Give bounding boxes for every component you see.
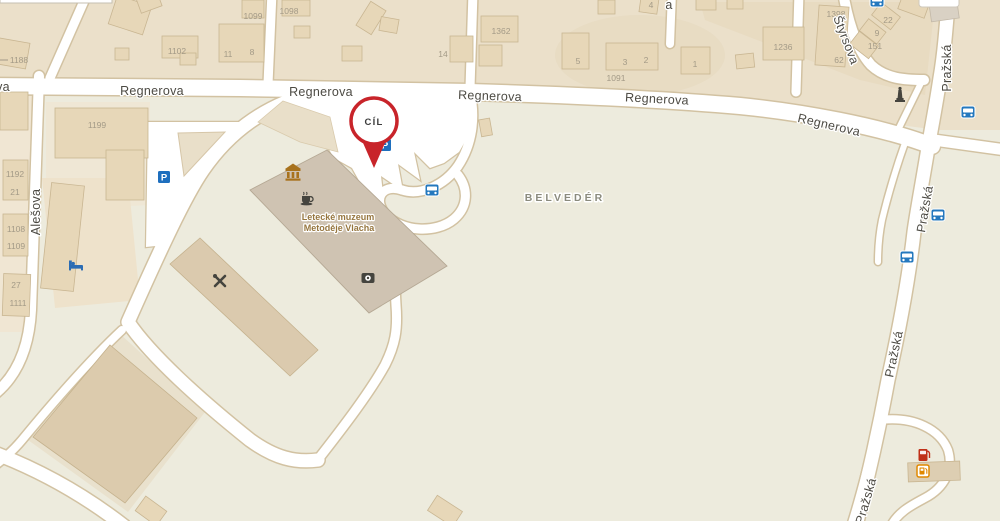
museum-label-line1: Letecké muzeum [302, 212, 375, 222]
house-number: 5 [576, 56, 581, 66]
house-number: 1109 [7, 241, 26, 251]
house-number: 1098 [280, 6, 299, 16]
house-number: 151 [868, 41, 882, 51]
building [294, 26, 310, 38]
house-number: 1111 [9, 298, 26, 308]
map-canvas: 1188 1102 11 8 1099 1098 14 1362 5 3 2 1… [0, 0, 1000, 521]
house-number: 1199 [88, 120, 107, 130]
map-viewport[interactable]: 1188 1102 11 8 1099 1098 14 1362 5 3 2 1… [0, 0, 1000, 521]
building [342, 46, 362, 61]
house-number: 4 [649, 0, 654, 10]
area-label-belvedere: BELVEDÉR [525, 191, 605, 204]
marker-label: CÍL [365, 117, 384, 128]
building [450, 36, 473, 62]
street-label-regnerova: Regnerova [120, 84, 184, 98]
house-number: 1099 [244, 11, 263, 21]
house-number: 2 [644, 55, 649, 65]
house-number: 8 [250, 47, 255, 57]
house-number: 1 [693, 59, 698, 69]
bus-stop-icon[interactable] [425, 184, 439, 196]
house-number: 9 [875, 28, 880, 38]
road-side-street [268, 0, 272, 84]
house-number: 1192 [6, 169, 25, 179]
bus-stop-icon[interactable] [961, 106, 975, 118]
building [479, 118, 493, 137]
street-label-regnerova: Regnerova [289, 85, 353, 99]
building [479, 45, 502, 66]
street-label-partial: a [665, 0, 672, 12]
cut-label-strip [0, 0, 112, 3]
fuel-station-building [908, 461, 961, 482]
bus-stop-icon[interactable] [870, 0, 884, 7]
street-label-prazska: Pražská [940, 44, 954, 91]
building [115, 48, 129, 60]
fuel-station-icon[interactable] [917, 465, 929, 477]
house-number: 1188 [10, 55, 29, 65]
parking-icon-letter: P [161, 173, 168, 184]
building [106, 150, 144, 200]
house-number: 62 [834, 55, 844, 65]
building [727, 0, 743, 9]
house-number: 14 [438, 49, 448, 59]
museum-label-line2: Metoděje Vlacha [304, 223, 376, 233]
house-number: 1236 [774, 42, 793, 52]
camera-icon[interactable] [362, 273, 375, 283]
cut-label-box [919, 0, 959, 7]
house-number: 21 [10, 187, 20, 197]
house-number: 1102 [168, 46, 187, 56]
house-number: 3 [623, 57, 628, 67]
building [606, 43, 658, 70]
house-number: 22 [883, 15, 893, 25]
building [696, 0, 716, 10]
house-number: 27 [11, 280, 21, 290]
house-number: 1108 [7, 224, 26, 234]
building [735, 53, 754, 69]
building [379, 17, 399, 34]
street-label-alesova: Alešova [29, 189, 43, 236]
house-number: 11 [224, 49, 233, 59]
bus-stop-icon[interactable] [900, 251, 914, 263]
bus-stop-icon[interactable] [931, 209, 945, 221]
house-number: 1362 [492, 26, 511, 36]
street-label-regnerova: Regnerova [458, 88, 522, 104]
building [0, 92, 28, 130]
street-label-partial: va [0, 80, 10, 94]
building [598, 0, 615, 14]
house-number: 1091 [607, 73, 626, 83]
